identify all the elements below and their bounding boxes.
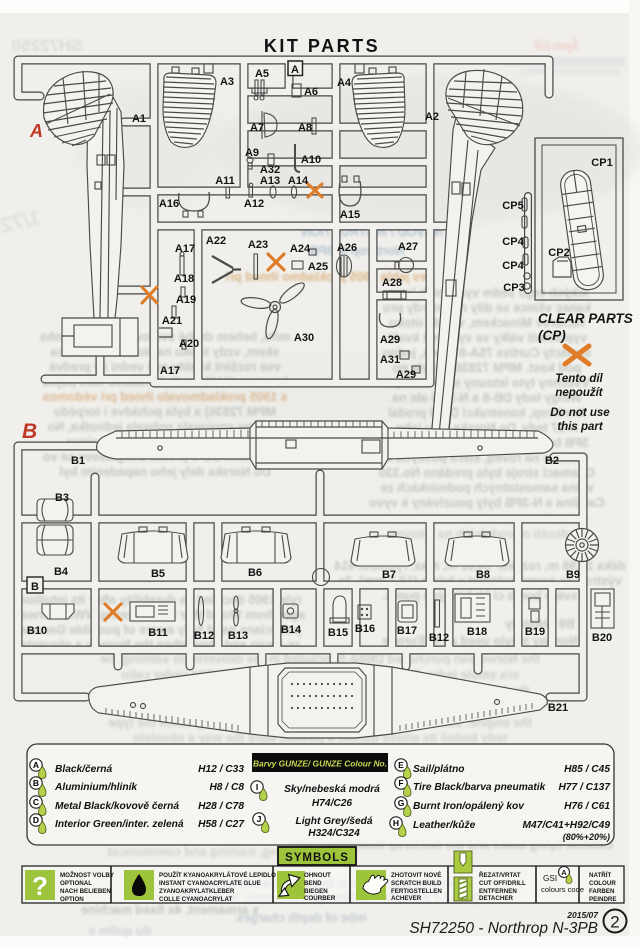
svg-text:A17: A17 xyxy=(160,365,180,377)
svg-text:A28: A28 xyxy=(382,277,402,289)
svg-text:colours code: colours code xyxy=(541,885,584,894)
svg-text:s armament, 4x fixed machine: s armament, 4x fixed machine xyxy=(81,903,259,917)
svg-text:A4: A4 xyxy=(337,77,352,89)
svg-text:MPM 72836) a byla pohádve i to: MPM 72836) a byla pohádve i torpédo xyxy=(53,405,276,419)
svg-text:?: ? xyxy=(32,871,48,901)
svg-text:A16: A16 xyxy=(159,198,179,210)
svg-text:B10: B10 xyxy=(27,625,47,637)
svg-text:A21: A21 xyxy=(162,315,182,327)
svg-text:A: A xyxy=(291,64,299,76)
svg-text:B1: B1 xyxy=(71,455,85,467)
svg-text:B12: B12 xyxy=(194,630,214,642)
svg-text:A24: A24 xyxy=(290,243,311,255)
svg-text:Barvy GUNZE/ GUNZE Colour No.: Barvy GUNZE/ GUNZE Colour No. xyxy=(253,759,387,769)
svg-text:Sail/plátno: Sail/plátno xyxy=(413,764,465,775)
svg-text:Light Grey/šedá: Light Grey/šedá xyxy=(296,816,373,827)
svg-text:A: A xyxy=(29,121,43,141)
svg-text:E: E xyxy=(398,760,404,770)
svg-text:B3: B3 xyxy=(55,492,69,504)
svg-text:B17: B17 xyxy=(397,625,417,637)
svg-text:A6: A6 xyxy=(304,86,318,98)
svg-text:pod kost. MPM 72836) a byla po: pod kost. MPM 72836) a byla po xyxy=(393,361,582,375)
svg-text:B18: B18 xyxy=(467,626,487,638)
svg-text:this part: this part xyxy=(557,421,604,433)
svg-text:CUT OFF/DRILL: CUT OFF/DRILL xyxy=(479,880,526,887)
svg-text:2: 2 xyxy=(610,913,619,932)
svg-text:DETACHER: DETACHER xyxy=(479,895,513,902)
svg-text:B4: B4 xyxy=(54,566,69,578)
svg-text:COURBER: COURBER xyxy=(304,895,336,902)
svg-text:F: F xyxy=(398,778,403,788)
svg-text:CP4: CP4 xyxy=(502,260,524,272)
svg-text:H76 / C61: H76 / C61 xyxy=(564,801,610,812)
svg-text:NACH BELIEBEN: NACH BELIEBEN xyxy=(60,888,111,895)
svg-text:ming, training and communicat: ming, training and communicat xyxy=(106,845,292,859)
svg-text:M47/C41+H92/C49: M47/C41+H92/C49 xyxy=(523,820,611,831)
svg-text:COLOUR: COLOUR xyxy=(589,880,616,887)
svg-text:A25: A25 xyxy=(308,261,328,273)
svg-text:CP3: CP3 xyxy=(503,282,524,294)
svg-text:Tento díl: Tento díl xyxy=(555,373,603,385)
svg-text:s 1905 prokladmovalo ihned pri: s 1905 prokladmovalo ihned pri védomos xyxy=(42,390,287,404)
svg-text:Catalina a N-3PB byly pouzíván: Catalina a N-3PB byly pouzívány k vyvo xyxy=(369,496,605,510)
svg-text:SYMBOLS: SYMBOLS xyxy=(285,852,349,864)
svg-text:H8 / C8: H8 / C8 xyxy=(209,782,244,793)
svg-text:H28 / C78: H28 / C78 xyxy=(198,801,244,812)
svg-text:A17: A17 xyxy=(175,243,195,255)
svg-text:CP4: CP4 xyxy=(502,236,524,248)
svg-text:H58 / C27: H58 / C27 xyxy=(198,819,245,830)
svg-text:B7: B7 xyxy=(382,569,396,581)
svg-text:D: D xyxy=(33,815,39,825)
svg-text:B6: B6 xyxy=(248,567,262,579)
svg-text:B9: B9 xyxy=(566,569,580,581)
svg-text:A19: A19 xyxy=(176,294,196,306)
svg-text:strnácty Curtiss 75A-8 Hawk, j: strnácty Curtiss 75A-8 Hawk, jedno xyxy=(382,346,591,360)
svg-text:Leather/kůže: Leather/kůže xyxy=(413,819,476,831)
svg-text:B: B xyxy=(22,420,37,443)
svg-text:(CP): (CP) xyxy=(538,328,566,343)
svg-text:H12 / C33: H12 / C33 xyxy=(198,764,244,775)
svg-text:Sky/nebeská modrá: Sky/nebeská modrá xyxy=(284,784,380,795)
svg-text:OPTIONAL: OPTIONAL xyxy=(60,880,92,887)
svg-text:B15: B15 xyxy=(328,627,348,639)
svg-text:GSI: GSI xyxy=(543,874,557,883)
svg-text:A13: A13 xyxy=(260,175,280,187)
svg-text:(80%+20%): (80%+20%) xyxy=(563,832,610,842)
svg-text:B12: B12 xyxy=(429,632,449,644)
svg-text:A7: A7 xyxy=(250,122,264,134)
svg-text:Burnt Iron/opálený kov: Burnt Iron/opálený kov xyxy=(413,801,525,812)
svg-text:Interior Green/inter. zelená: Interior Green/inter. zelená xyxy=(55,819,184,830)
svg-text:A15: A15 xyxy=(340,209,360,221)
svg-text:A12: A12 xyxy=(244,198,264,210)
svg-text:FARBEN: FARBEN xyxy=(589,888,615,895)
svg-text:H77 / C137: H77 / C137 xyxy=(558,782,611,793)
svg-text:Aluminium/hliník: Aluminium/hliník xyxy=(54,782,138,793)
svg-text:H74/C26: H74/C26 xyxy=(312,798,353,809)
svg-text:CP5: CP5 xyxy=(502,200,523,212)
svg-text:H: H xyxy=(393,818,399,828)
svg-text:A2: A2 xyxy=(425,111,439,123)
svg-text:A26: A26 xyxy=(337,242,357,254)
svg-text:CP1: CP1 xyxy=(591,157,612,169)
svg-text:PEINDRE: PEINDRE xyxy=(589,896,617,903)
svg-text:A10: A10 xyxy=(301,154,321,166)
svg-text:velna samostatných podmínkách: velna samostatných podmínkách ze xyxy=(380,481,593,495)
svg-text:ENTFERNEN: ENTFERNEN xyxy=(479,888,517,895)
svg-text:B5: B5 xyxy=(151,568,165,580)
svg-text:A: A xyxy=(33,760,39,770)
svg-text:B13: B13 xyxy=(228,630,248,642)
svg-text:B: B xyxy=(33,778,39,788)
svg-text:ZHOTOVIT NOVÉ: ZHOTOVIT NOVÉ xyxy=(391,871,441,879)
svg-text:B8: B8 xyxy=(476,569,490,581)
svg-text:B16: B16 xyxy=(355,623,375,635)
svg-text:POUŽÍT KYANOAKRYLÁTOVÉ LEPIDLO: POUŽÍT KYANOAKRYLÁTOVÉ LEPIDLO xyxy=(159,871,276,879)
svg-text:COLLE CYANOACRYLAT: COLLE CYANOACRYLAT xyxy=(159,896,233,903)
svg-text:A18: A18 xyxy=(174,273,194,285)
svg-text:Do not use: Do not use xyxy=(550,407,610,419)
svg-text:A8: A8 xyxy=(298,122,312,134)
svg-text:SH72250 - Northrop N-3PB: SH72250 - Northrop N-3PB xyxy=(409,920,598,937)
svg-text:nepoužít: nepoužít xyxy=(555,387,603,399)
svg-text:B19: B19 xyxy=(525,626,545,638)
svg-text:B20: B20 xyxy=(592,632,612,644)
svg-text:FERTIGSTELLEN: FERTIGSTELLEN xyxy=(391,888,442,895)
svg-text:G: G xyxy=(398,798,405,808)
svg-text:H324/C324: H324/C324 xyxy=(308,828,360,839)
svg-text:MOŽNOST VOLBY: MOŽNOST VOLBY xyxy=(60,871,115,879)
svg-text:A22: A22 xyxy=(206,235,226,247)
svg-text:2015/07: 2015/07 xyxy=(566,910,599,920)
svg-text:ZYANOAKRYLATKLEBER: ZYANOAKRYLATKLEBER xyxy=(159,888,235,895)
svg-text:du quilm s: du quilm s xyxy=(89,924,152,938)
svg-text:SCRATCH BUILD: SCRATCH BUILD xyxy=(391,880,442,887)
svg-text:A11: A11 xyxy=(215,175,235,187)
svg-text:INSTANT CYANOACRYLATE GLUE: INSTANT CYANOACRYLATE GLUE xyxy=(159,880,261,887)
svg-text:A31: A31 xyxy=(380,354,400,366)
svg-text:CP2: CP2 xyxy=(548,247,569,259)
svg-text:B2: B2 xyxy=(545,455,559,467)
svg-text:A27: A27 xyxy=(398,241,418,253)
svg-text:OPTION: OPTION xyxy=(60,896,84,903)
svg-text:Špeciál: Špeciál xyxy=(534,37,580,54)
svg-text:ACHEVER: ACHEVER xyxy=(391,895,422,902)
svg-text:H85 / C45: H85 / C45 xyxy=(564,764,610,775)
svg-text:A14: A14 xyxy=(288,175,309,187)
svg-text:KIT PARTS: KIT PARTS xyxy=(264,36,380,56)
svg-text:NATŘÍT: NATŘÍT xyxy=(589,871,611,879)
svg-text:ŘEZAT/VRTAT: ŘEZAT/VRTAT xyxy=(479,871,521,879)
svg-text:B: B xyxy=(31,581,39,593)
svg-text:OHNOUT: OHNOUT xyxy=(304,872,331,879)
svg-text:A3: A3 xyxy=(220,76,234,88)
svg-text:Tire Black/barva pneumatik: Tire Black/barva pneumatik xyxy=(413,782,547,793)
svg-text:A9: A9 xyxy=(245,147,259,159)
svg-text:A5: A5 xyxy=(255,68,269,80)
svg-text:BEND: BEND xyxy=(304,880,322,887)
svg-text:A20: A20 xyxy=(179,338,199,350)
svg-text:Osamací stroje bylo predáno No: Osamací stroje bylo predáno No.330 xyxy=(379,466,595,480)
svg-text:J: J xyxy=(257,814,262,824)
svg-text:BIEGEN: BIEGEN xyxy=(304,888,328,895)
svg-text:mbe of depth charges.: mbe of depth charges. xyxy=(233,911,366,925)
svg-text:A1: A1 xyxy=(132,113,146,125)
svg-text:I: I xyxy=(256,782,258,792)
svg-text:SH72250: SH72250 xyxy=(12,36,83,55)
svg-text:A30: A30 xyxy=(294,332,314,344)
svg-text:B11: B11 xyxy=(148,627,168,639)
svg-text:A29: A29 xyxy=(396,369,416,381)
svg-text:Black/černá: Black/černá xyxy=(55,764,113,775)
svg-text:Metal Black/kovově černá: Metal Black/kovově černá xyxy=(55,801,179,812)
svg-text:A23: A23 xyxy=(248,239,268,251)
svg-text:Wingy tedy DB-8 a N-3PB ale na: Wingy tedy DB-8 a N-3PB ale na xyxy=(391,391,582,405)
svg-text:CLEAR PARTS: CLEAR PARTS xyxy=(538,311,633,326)
svg-text:A29: A29 xyxy=(380,334,400,346)
svg-text:B14: B14 xyxy=(281,624,302,636)
svg-text:C: C xyxy=(33,797,39,807)
svg-text:A: A xyxy=(561,868,567,877)
svg-text:B21: B21 xyxy=(548,702,568,714)
